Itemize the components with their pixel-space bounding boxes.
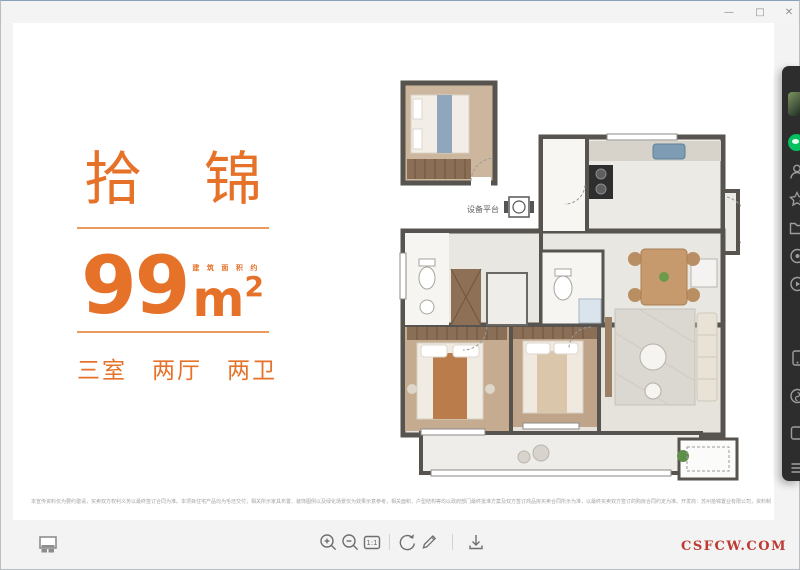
- phone-icon[interactable]: [788, 348, 800, 368]
- maximize-button[interactable]: □: [747, 2, 773, 23]
- minimize-button[interactable]: —: [716, 2, 742, 23]
- wechat-dock: [782, 66, 800, 481]
- moments-icon[interactable]: [788, 246, 800, 266]
- thumbnail-view-icon[interactable]: [37, 533, 59, 555]
- image-canvas: 拾锦 99 建筑面积约 m2 三室 两厅 两卫: [13, 23, 774, 520]
- floorplan-bedrooms: [405, 327, 597, 435]
- area-unit: m: [192, 270, 244, 328]
- contacts-icon[interactable]: [788, 162, 800, 182]
- site-watermark: CSFCW.COM: [681, 539, 787, 554]
- title-bar: — □ ✕: [2, 2, 798, 23]
- one-to-one-icon[interactable]: 1:1: [362, 532, 382, 552]
- favorites-icon[interactable]: [788, 190, 800, 210]
- area-line: 99 建筑面积约 m2: [77, 237, 269, 319]
- toolbar-separator: [452, 534, 453, 550]
- zoom-in-icon[interactable]: [318, 532, 338, 552]
- area-exponent: 2: [245, 270, 264, 303]
- rotate-clockwise-icon[interactable]: [397, 532, 417, 552]
- workspace-icon[interactable]: [788, 423, 800, 443]
- disclaimer-text: 本宣传资料仅为要约邀请，买卖双方权利义务以最终签订合同为准。本项目住宅产品均为毛…: [31, 497, 771, 505]
- floorplan-detached-room: [403, 83, 495, 186]
- equipment-platform-label: 设备平台: [467, 204, 499, 214]
- more-menu-icon[interactable]: [788, 458, 800, 478]
- chat-files-icon[interactable]: [788, 218, 800, 238]
- app-window: — □ ✕ 拾锦 99 建筑面积约 m2 三室 两厅 两卫: [0, 0, 800, 570]
- floorplan-image[interactable]: 设备平台: [391, 73, 741, 485]
- poster-text-block: 拾锦 99 建筑面积约 m2 三室 两厅 两卫: [77, 143, 269, 385]
- viewer-toolbar: 1:1: [317, 532, 487, 552]
- one-to-one-label: 1:1: [366, 539, 377, 547]
- close-button[interactable]: ✕: [776, 2, 800, 23]
- zoom-out-icon[interactable]: [340, 532, 360, 552]
- divider-line-top: [77, 227, 269, 229]
- avatar[interactable]: [788, 92, 800, 116]
- download-icon[interactable]: [466, 532, 486, 552]
- floorplan-equipment-platform: 设备平台: [467, 197, 534, 217]
- rooms-summary: 三室 两厅 两卫: [77, 351, 269, 385]
- mini-programs-icon[interactable]: [788, 386, 800, 406]
- wechat-chat-icon[interactable]: [788, 134, 800, 151]
- toolbar-separator: [389, 534, 390, 550]
- channels-icon[interactable]: [788, 274, 800, 294]
- edit-pencil-icon[interactable]: [419, 532, 439, 552]
- area-value: 99: [81, 253, 188, 319]
- project-name: 拾锦: [77, 143, 331, 215]
